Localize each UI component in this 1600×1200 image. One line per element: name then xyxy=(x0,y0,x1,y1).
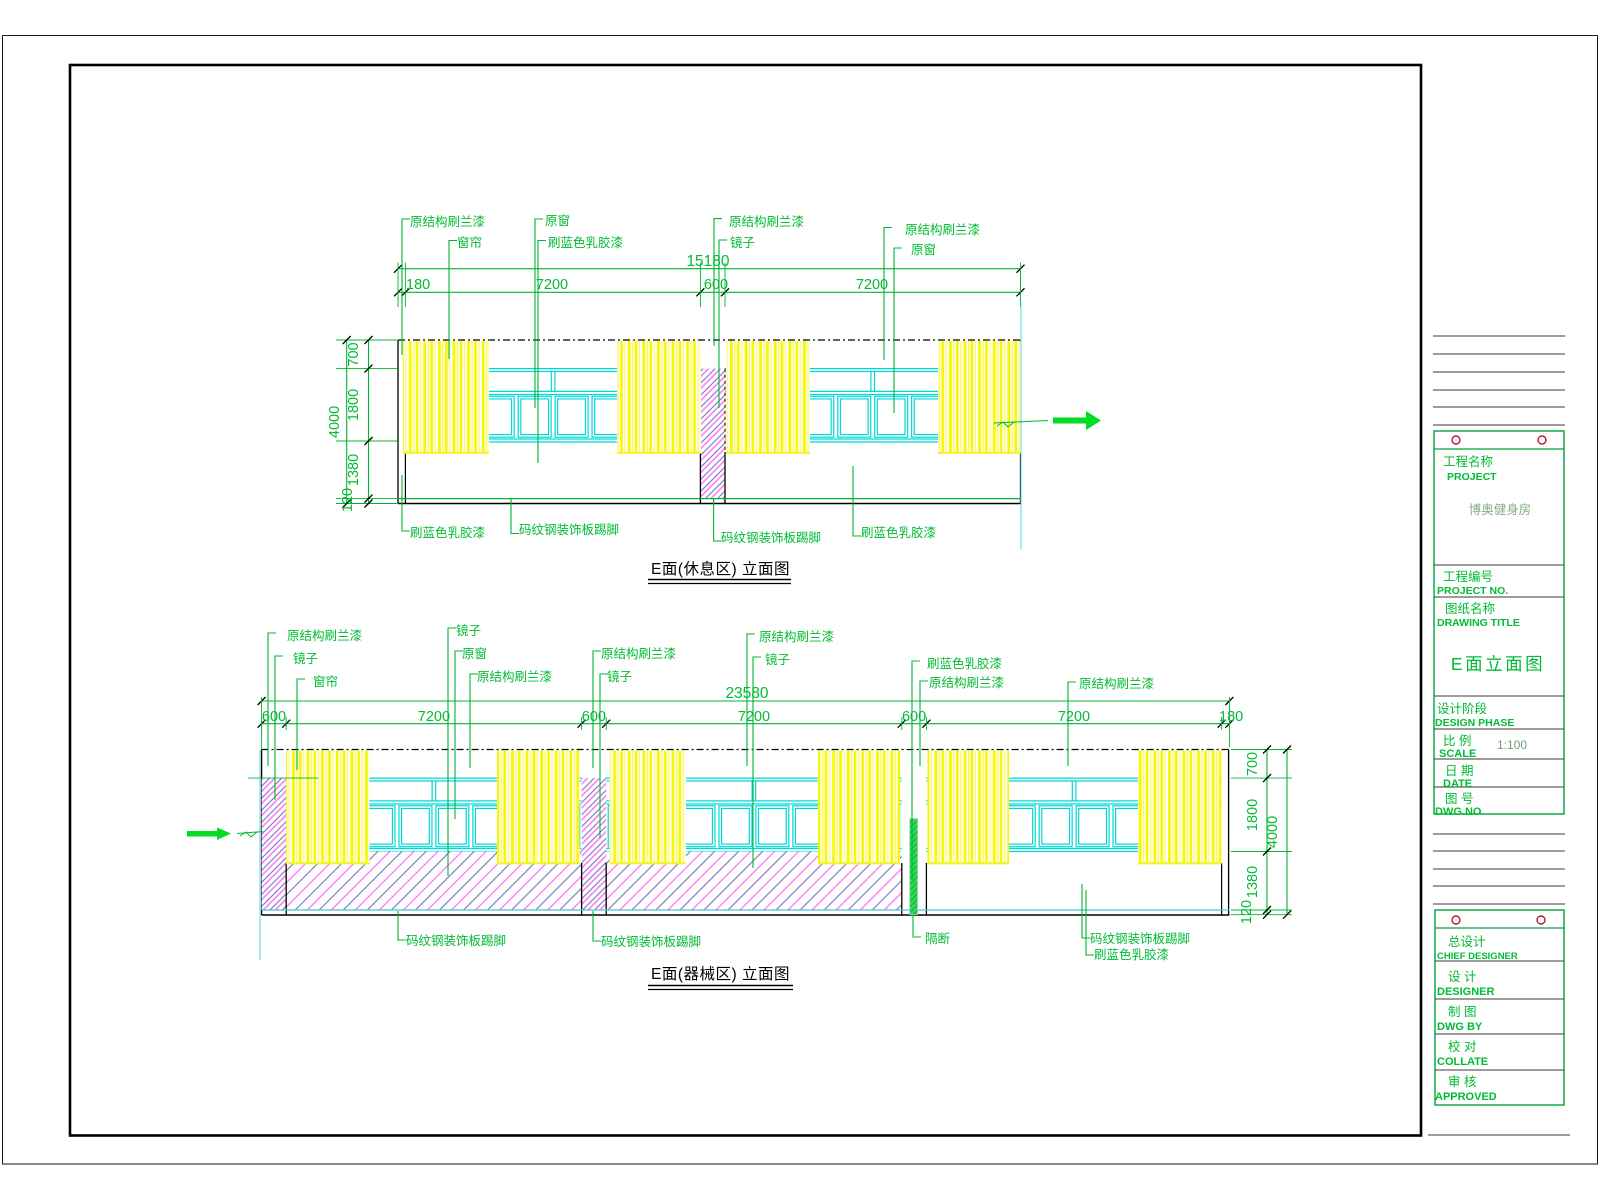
svg-text:码纹钢装饰板踢脚: 码纹钢装饰板踢脚 xyxy=(1090,931,1190,946)
svg-text:7200: 7200 xyxy=(738,709,770,725)
svg-text:原结构刷兰漆: 原结构刷兰漆 xyxy=(759,629,834,644)
svg-text:原结构刷兰漆: 原结构刷兰漆 xyxy=(601,646,676,661)
svg-text:制 图: 制 图 xyxy=(1448,1005,1476,1019)
svg-text:刷蓝色乳胶漆: 刷蓝色乳胶漆 xyxy=(410,525,485,540)
svg-text:镜子: 镜子 xyxy=(765,652,790,667)
svg-text:1380: 1380 xyxy=(1245,866,1261,898)
svg-text:刷蓝色乳胶漆: 刷蓝色乳胶漆 xyxy=(927,656,1002,671)
svg-text:4000: 4000 xyxy=(1265,816,1281,848)
svg-text:码纹钢装饰板踢脚: 码纹钢装饰板踢脚 xyxy=(519,522,619,537)
svg-text:原结构刷兰漆: 原结构刷兰漆 xyxy=(905,222,980,237)
svg-text:刷蓝色乳胶漆: 刷蓝色乳胶漆 xyxy=(1094,947,1169,962)
svg-text:设 计: 设 计 xyxy=(1448,969,1476,984)
svg-text:图 号: 图 号 xyxy=(1445,792,1473,806)
svg-text:DRAWING TITLE: DRAWING TITLE xyxy=(1437,617,1520,629)
svg-text:DWG.NO: DWG.NO xyxy=(1435,806,1482,818)
svg-text:镜子: 镜子 xyxy=(730,235,755,250)
svg-text:日 期: 日 期 xyxy=(1445,764,1473,778)
svg-text:原窗: 原窗 xyxy=(462,647,487,661)
svg-text:COLLATE: COLLATE xyxy=(1437,1056,1488,1068)
svg-text:600: 600 xyxy=(704,277,728,293)
svg-text:镜子: 镜子 xyxy=(293,651,318,666)
svg-text:原窗: 原窗 xyxy=(911,243,936,257)
svg-text:原结构刷兰漆: 原结构刷兰漆 xyxy=(287,628,362,643)
svg-text:原结构刷兰漆: 原结构刷兰漆 xyxy=(1079,676,1154,691)
svg-text:E面(器械区) 立面图: E面(器械区) 立面图 xyxy=(651,965,790,983)
svg-text:180: 180 xyxy=(1219,709,1243,725)
svg-text:隔断: 隔断 xyxy=(925,931,950,946)
svg-text:图纸名称: 图纸名称 xyxy=(1445,601,1495,616)
svg-text:原结构刷兰漆: 原结构刷兰漆 xyxy=(410,214,485,229)
svg-text:原结构刷兰漆: 原结构刷兰漆 xyxy=(729,214,804,229)
svg-text:码纹钢装饰板踢脚: 码纹钢装饰板踢脚 xyxy=(406,933,506,948)
svg-text:DESIGN PHASE: DESIGN PHASE xyxy=(1435,717,1514,729)
svg-text:1800: 1800 xyxy=(1245,799,1261,831)
svg-text:工程编号: 工程编号 xyxy=(1443,569,1493,584)
svg-text:120: 120 xyxy=(340,488,356,512)
svg-text:E面立面图: E面立面图 xyxy=(1451,654,1545,674)
svg-text:设计阶段: 设计阶段 xyxy=(1437,701,1487,716)
svg-text:总设计: 总设计 xyxy=(1448,934,1486,949)
svg-text:1380: 1380 xyxy=(346,454,362,486)
svg-text:700: 700 xyxy=(346,342,362,366)
svg-text:7200: 7200 xyxy=(1058,709,1090,725)
svg-text:DWG BY: DWG BY xyxy=(1437,1021,1483,1033)
svg-text:APPROVED: APPROVED xyxy=(1435,1091,1497,1103)
svg-text:600: 600 xyxy=(262,709,286,725)
svg-text:PROJECT: PROJECT xyxy=(1447,471,1497,483)
svg-text:码纹钢装饰板踢脚: 码纹钢装饰板踢脚 xyxy=(601,934,701,949)
svg-text:窗帘: 窗帘 xyxy=(457,235,482,250)
svg-text:原结构刷兰漆: 原结构刷兰漆 xyxy=(929,675,1004,690)
svg-text:DATE: DATE xyxy=(1443,778,1472,790)
svg-text:比 例: 比 例 xyxy=(1443,734,1471,748)
svg-text:600: 600 xyxy=(902,709,926,725)
svg-text:工程名称: 工程名称 xyxy=(1443,454,1493,469)
svg-text:码纹钢装饰板踢脚: 码纹钢装饰板踢脚 xyxy=(721,530,821,545)
svg-text:4000: 4000 xyxy=(327,406,343,438)
svg-text:CHIEF DESIGNER: CHIEF DESIGNER xyxy=(1437,951,1518,962)
svg-text:120: 120 xyxy=(1239,900,1255,924)
svg-text:15180: 15180 xyxy=(686,253,729,270)
svg-text:E面(休息区) 立面图: E面(休息区) 立面图 xyxy=(651,560,790,578)
svg-text:SCALE: SCALE xyxy=(1439,748,1476,760)
svg-text:1800: 1800 xyxy=(346,389,362,421)
svg-text:7200: 7200 xyxy=(536,277,568,293)
svg-text:原窗: 原窗 xyxy=(545,214,570,228)
svg-text:600: 600 xyxy=(582,709,606,725)
svg-text:7200: 7200 xyxy=(418,709,450,725)
svg-text:校 对: 校 对 xyxy=(1448,1039,1476,1054)
svg-text:镜子: 镜子 xyxy=(456,623,481,638)
svg-text:180: 180 xyxy=(406,277,430,293)
svg-text:镜子: 镜子 xyxy=(607,669,632,684)
svg-text:博奥健身房: 博奥健身房 xyxy=(1469,502,1532,517)
svg-text:窗帘: 窗帘 xyxy=(313,674,338,689)
svg-text:7200: 7200 xyxy=(856,277,888,293)
svg-text:原结构刷兰漆: 原结构刷兰漆 xyxy=(477,669,552,684)
svg-text:审 核: 审 核 xyxy=(1448,1074,1477,1089)
svg-text:1:100: 1:100 xyxy=(1497,738,1527,752)
svg-text:刷蓝色乳胶漆: 刷蓝色乳胶漆 xyxy=(861,525,936,540)
svg-text:刷蓝色乳胶漆: 刷蓝色乳胶漆 xyxy=(548,235,623,250)
svg-text:700: 700 xyxy=(1245,752,1261,776)
svg-text:DESIGNER: DESIGNER xyxy=(1437,986,1495,998)
svg-text:PROJECT NO.: PROJECT NO. xyxy=(1437,585,1508,597)
